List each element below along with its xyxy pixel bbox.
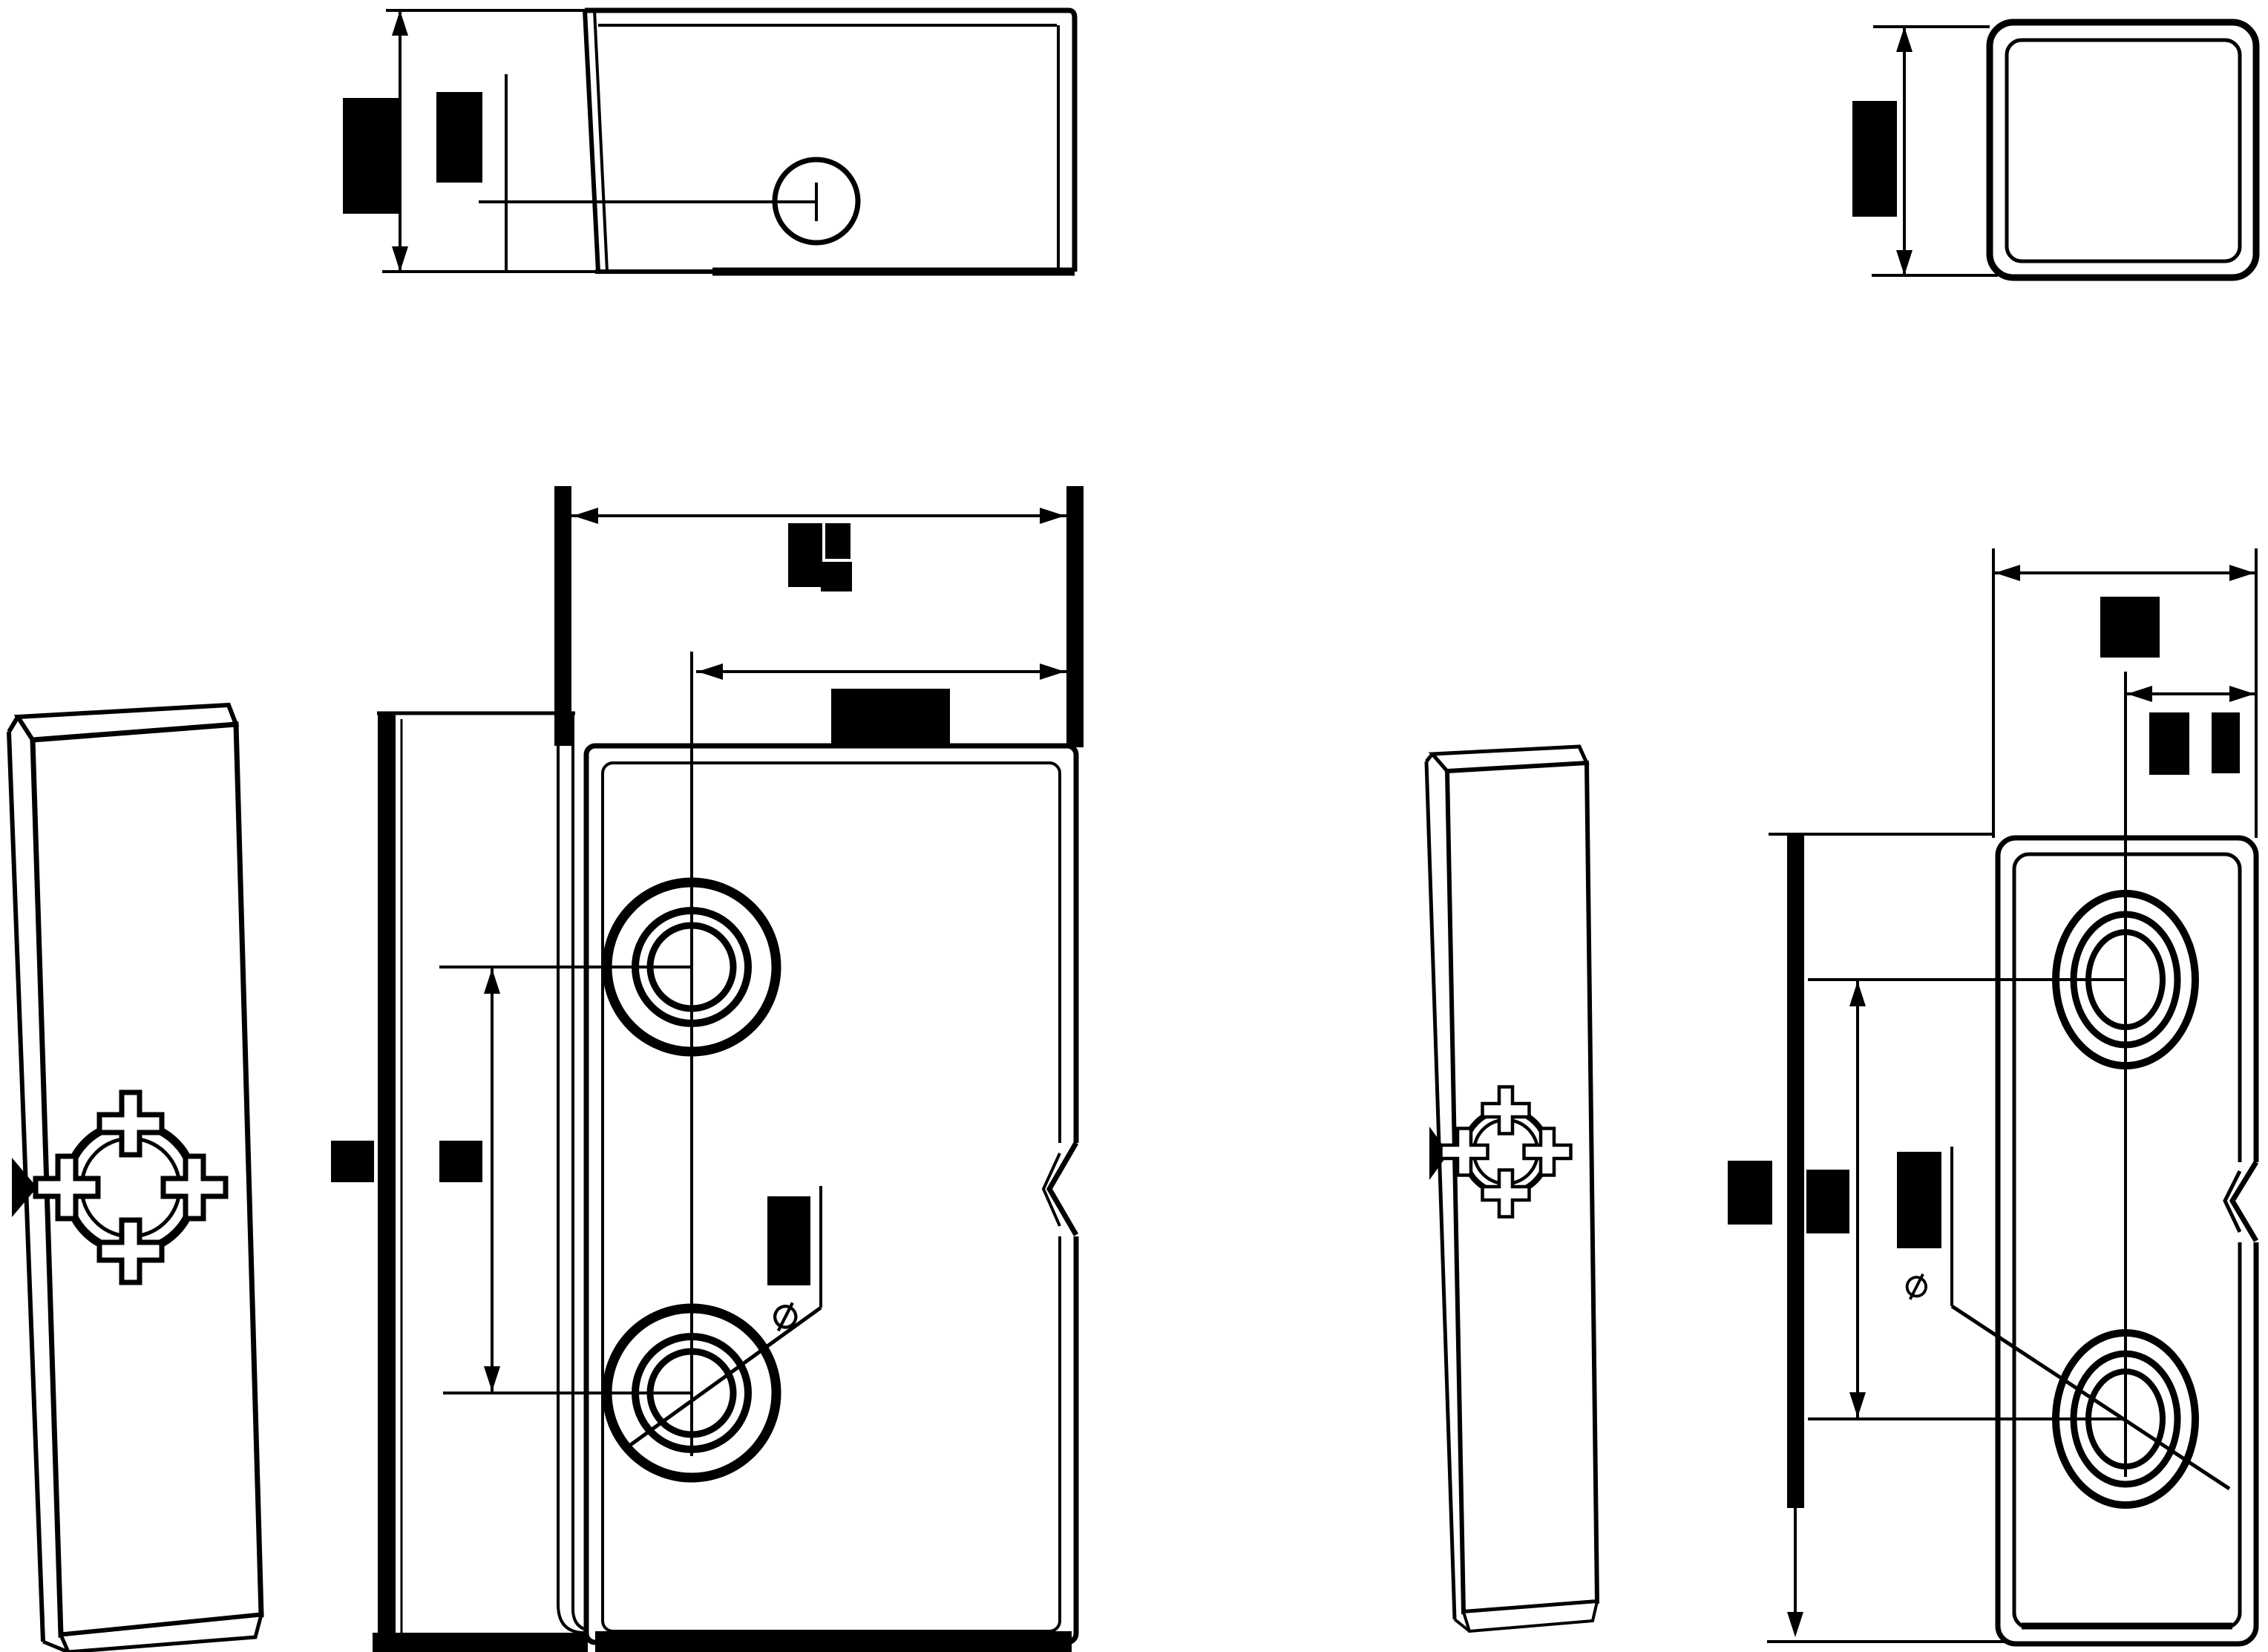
redacted-dimension-label — [2100, 597, 2160, 658]
arrowhead-right — [2229, 565, 2255, 581]
arrowhead-down — [1849, 1392, 1866, 1417]
redacted-dimension-label — [1852, 101, 1897, 217]
redacted-dimension-label — [831, 689, 950, 744]
redacted-dimension-label — [331, 1141, 374, 1182]
redacted-dimension-label — [821, 562, 852, 591]
arrowhead-down — [484, 1366, 500, 1392]
arrowhead-up — [1896, 27, 1913, 52]
redacted-dimension-label — [436, 92, 482, 183]
arrowhead-up — [392, 10, 408, 36]
arrowhead-left — [2127, 686, 2152, 702]
top-view-outline-outer — [1990, 22, 2256, 278]
extension-bar-right — [1066, 486, 1084, 747]
arrowhead-right — [1040, 508, 1065, 524]
arrowhead-down — [1787, 1612, 1803, 1637]
arrowhead-up — [1849, 981, 1866, 1006]
arrowhead-left — [1995, 565, 2020, 581]
side-view-bottom-edge-thick — [373, 1633, 588, 1652]
redacted-dimension-label — [825, 523, 850, 559]
top-view-left-part — [343, 10, 1075, 272]
redacted-dimension-label — [788, 523, 822, 587]
arrowhead-up — [484, 968, 500, 994]
front-view-bottom-edge-thick — [595, 1631, 1072, 1652]
redacted-dimension-label — [767, 1196, 810, 1285]
side-view-left-edge-thick — [378, 713, 396, 1652]
top-view-right-part — [1852, 22, 2256, 278]
redacted-dimension-label — [1728, 1161, 1772, 1225]
arrowhead-left — [698, 663, 723, 680]
slab-edge-join — [9, 717, 18, 732]
engineering-drawing-canvas: ⌀ — [0, 0, 2268, 1652]
isometric-slab-right-part — [1426, 747, 1597, 1631]
arrowhead-down — [1896, 250, 1913, 275]
redacted-dimension-label — [1806, 1170, 1849, 1233]
side-view-left-part — [373, 713, 597, 1652]
isometric-slab-left-part — [9, 705, 261, 1652]
front-view-left-part — [439, 652, 1081, 1652]
redacted-dimension-label — [343, 98, 401, 214]
arrowhead-right — [1040, 663, 1065, 680]
side-view-thin-profile — [1787, 834, 1804, 1508]
front-view-outline-outer — [586, 746, 1076, 1642]
front-view-right-part — [1808, 672, 2261, 1644]
top-view-outline-outer — [585, 10, 1075, 272]
slab-edge-join — [1426, 754, 1432, 761]
arrowhead-down — [392, 246, 408, 272]
redacted-dimension-label — [2212, 712, 2240, 773]
arrowhead-left — [573, 508, 598, 524]
arrowhead-right — [2229, 686, 2255, 702]
side-view-right-part — [1767, 834, 2008, 1642]
redacted-dimension-label — [439, 1141, 482, 1182]
extension-bar-left — [554, 486, 571, 746]
diameter-symbol: ⌀ — [1896, 1256, 1935, 1310]
redacted-dimension-label — [2149, 712, 2189, 775]
redacted-dimension-label — [1897, 1152, 1941, 1248]
